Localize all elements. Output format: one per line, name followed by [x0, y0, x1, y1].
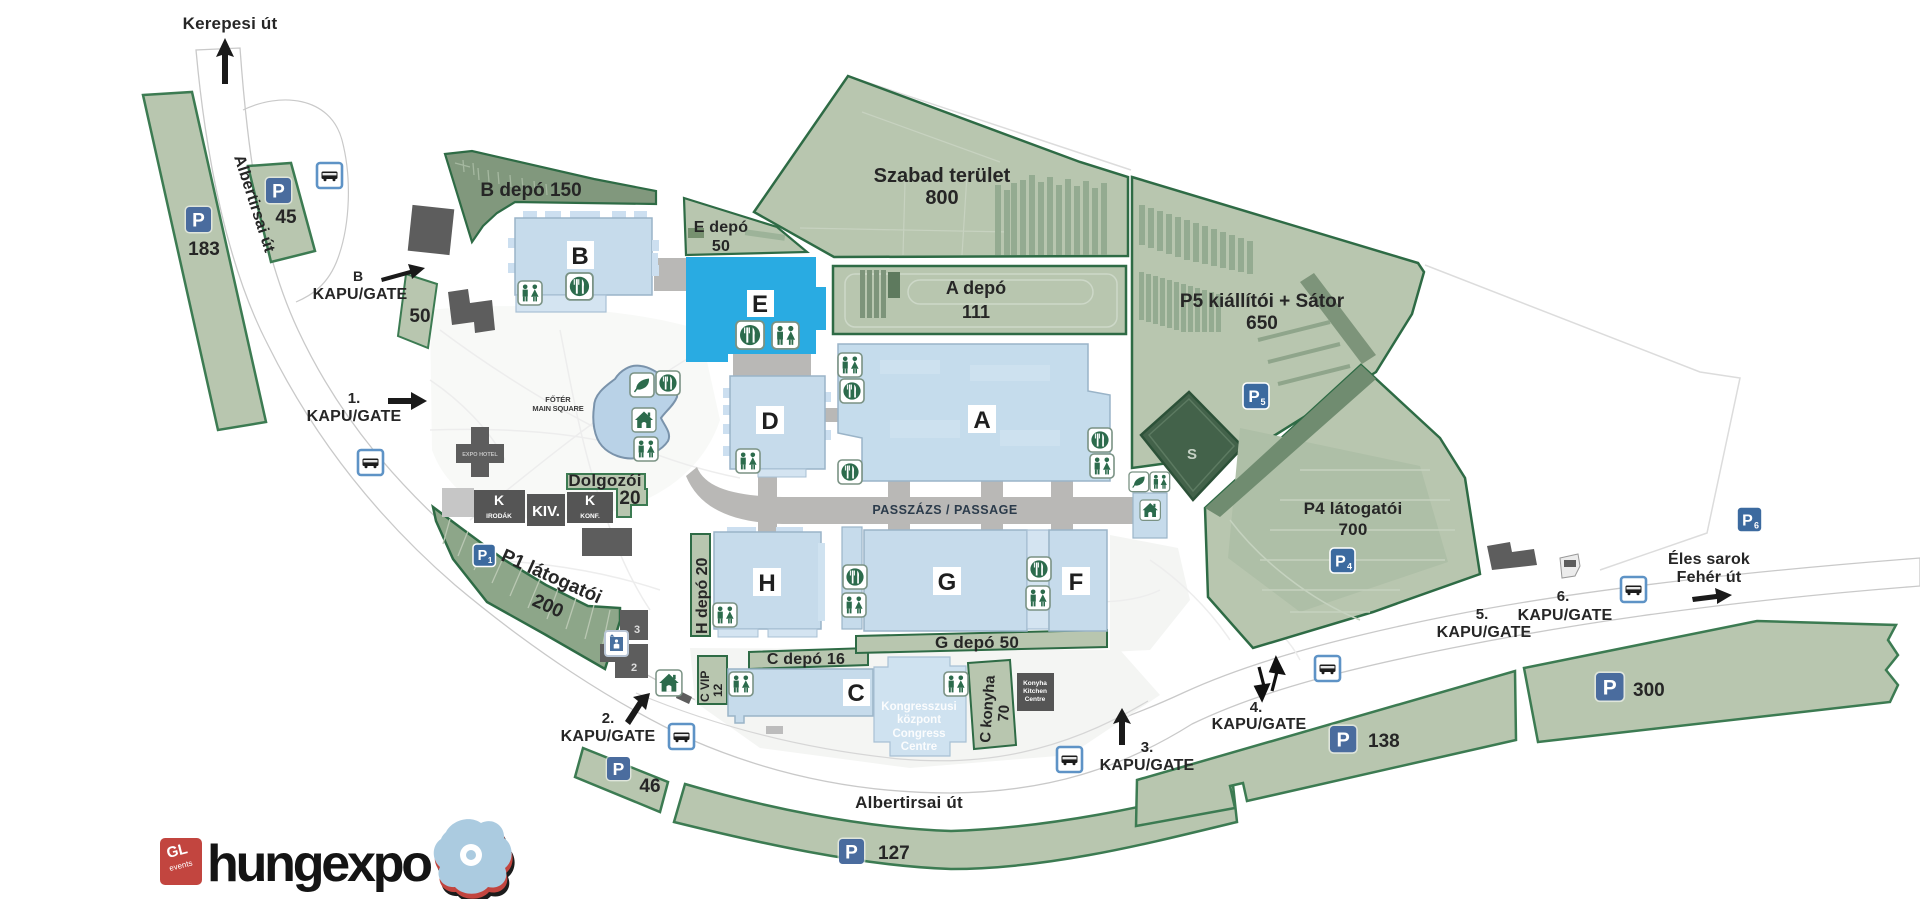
svg-text:20: 20 [619, 488, 640, 509]
svg-text:G: G [938, 569, 957, 596]
svg-text:2.: 2. [602, 710, 615, 727]
svg-text:KAPU/GATE: KAPU/GATE [1437, 624, 1532, 641]
svg-text:6: 6 [1754, 521, 1759, 531]
svg-text:5.: 5. [1476, 606, 1489, 623]
svg-text:127: 127 [878, 843, 910, 864]
svg-text:Konyha: Konyha [1023, 680, 1047, 687]
svg-text:70: 70 [995, 704, 1013, 722]
svg-text:Congress: Congress [892, 728, 945, 740]
svg-text:E depó: E depó [694, 219, 749, 236]
svg-text:KAPU/GATE: KAPU/GATE [1100, 757, 1195, 774]
svg-text:3.: 3. [1141, 739, 1154, 756]
svg-text:C VIP: C VIP [698, 671, 712, 702]
svg-text:IRODÁK: IRODÁK [486, 511, 512, 520]
svg-text:B depó 150: B depó 150 [480, 180, 581, 201]
svg-text:KAPU/GATE: KAPU/GATE [1212, 716, 1307, 733]
svg-text:2: 2 [631, 662, 637, 674]
svg-text:Albertirsai út: Albertirsai út [855, 793, 963, 812]
svg-text:300: 300 [1633, 680, 1665, 701]
svg-text:Kongresszusi: Kongresszusi [881, 701, 956, 713]
svg-text:Kerepesi út: Kerepesi út [183, 14, 278, 33]
svg-text:KIV.: KIV. [532, 503, 560, 520]
svg-text:B: B [353, 268, 363, 284]
svg-text:KAPU/GATE: KAPU/GATE [313, 286, 408, 303]
svg-text:P4 látogatói: P4 látogatói [1304, 499, 1403, 518]
svg-text:46: 46 [639, 776, 660, 797]
svg-text:F: F [1069, 569, 1084, 596]
svg-text:PASSZÁZS / PASSAGE: PASSZÁZS / PASSAGE [872, 502, 1017, 517]
svg-text:C depó 16: C depó 16 [767, 651, 845, 668]
svg-text:P: P [478, 548, 488, 564]
svg-text:P5 kiállítói + Sátor: P5 kiállítói + Sátor [1180, 291, 1345, 312]
svg-text:1: 1 [488, 556, 493, 565]
svg-text:H: H [758, 570, 775, 597]
svg-text:központ: központ [897, 714, 941, 726]
svg-text:800: 800 [925, 187, 958, 209]
svg-text:KAPU/GATE: KAPU/GATE [307, 408, 402, 425]
svg-text:Fehér út: Fehér út [1677, 569, 1742, 586]
svg-text:45: 45 [275, 207, 297, 228]
svg-text:Centre: Centre [901, 741, 937, 753]
svg-text:MAIN SQUARE: MAIN SQUARE [532, 404, 583, 413]
svg-text:P: P [1742, 513, 1753, 530]
svg-text:K: K [585, 492, 595, 508]
svg-text:EXPO HOTEL: EXPO HOTEL [462, 452, 498, 458]
svg-text:A: A [973, 407, 990, 434]
svg-text:KONF.: KONF. [580, 513, 600, 520]
svg-text:700: 700 [1339, 520, 1368, 539]
svg-text:P: P [1335, 554, 1346, 571]
svg-text:C: C [847, 680, 864, 707]
svg-text:Szabad terület: Szabad terület [874, 165, 1011, 187]
svg-text:FŐTÉR: FŐTÉR [545, 395, 571, 404]
svg-text:12: 12 [711, 683, 725, 697]
svg-text:A depó: A depó [946, 278, 1006, 298]
svg-text:K: K [494, 492, 504, 508]
svg-text:Éles sarok: Éles sarok [1668, 549, 1750, 568]
svg-text:1.: 1. [348, 390, 361, 407]
svg-text:50: 50 [712, 238, 730, 255]
svg-text:138: 138 [1368, 731, 1400, 752]
svg-text:E: E [752, 291, 768, 318]
svg-text:H depó 20: H depó 20 [694, 557, 711, 634]
svg-text:S: S [1187, 446, 1197, 463]
svg-text:KAPU/GATE: KAPU/GATE [1518, 607, 1613, 624]
svg-text:111: 111 [962, 302, 990, 322]
svg-text:Kitchen: Kitchen [1023, 688, 1047, 695]
svg-text:hungexpo: hungexpo [207, 835, 431, 893]
svg-text:650: 650 [1246, 313, 1278, 334]
svg-text:KAPU/GATE: KAPU/GATE [561, 728, 656, 745]
svg-text:6.: 6. [1557, 588, 1570, 605]
svg-text:183: 183 [188, 239, 220, 260]
svg-text:P: P [1248, 387, 1259, 406]
svg-text:4.: 4. [1250, 699, 1263, 716]
svg-text:G depó 50: G depó 50 [935, 633, 1019, 652]
svg-text:B: B [571, 243, 588, 270]
svg-text:3: 3 [634, 624, 640, 636]
svg-text:50: 50 [409, 306, 430, 327]
svg-text:5: 5 [1260, 397, 1265, 407]
svg-text:D: D [761, 408, 778, 435]
svg-text:4: 4 [1347, 562, 1352, 572]
svg-text:Centre: Centre [1025, 696, 1046, 703]
